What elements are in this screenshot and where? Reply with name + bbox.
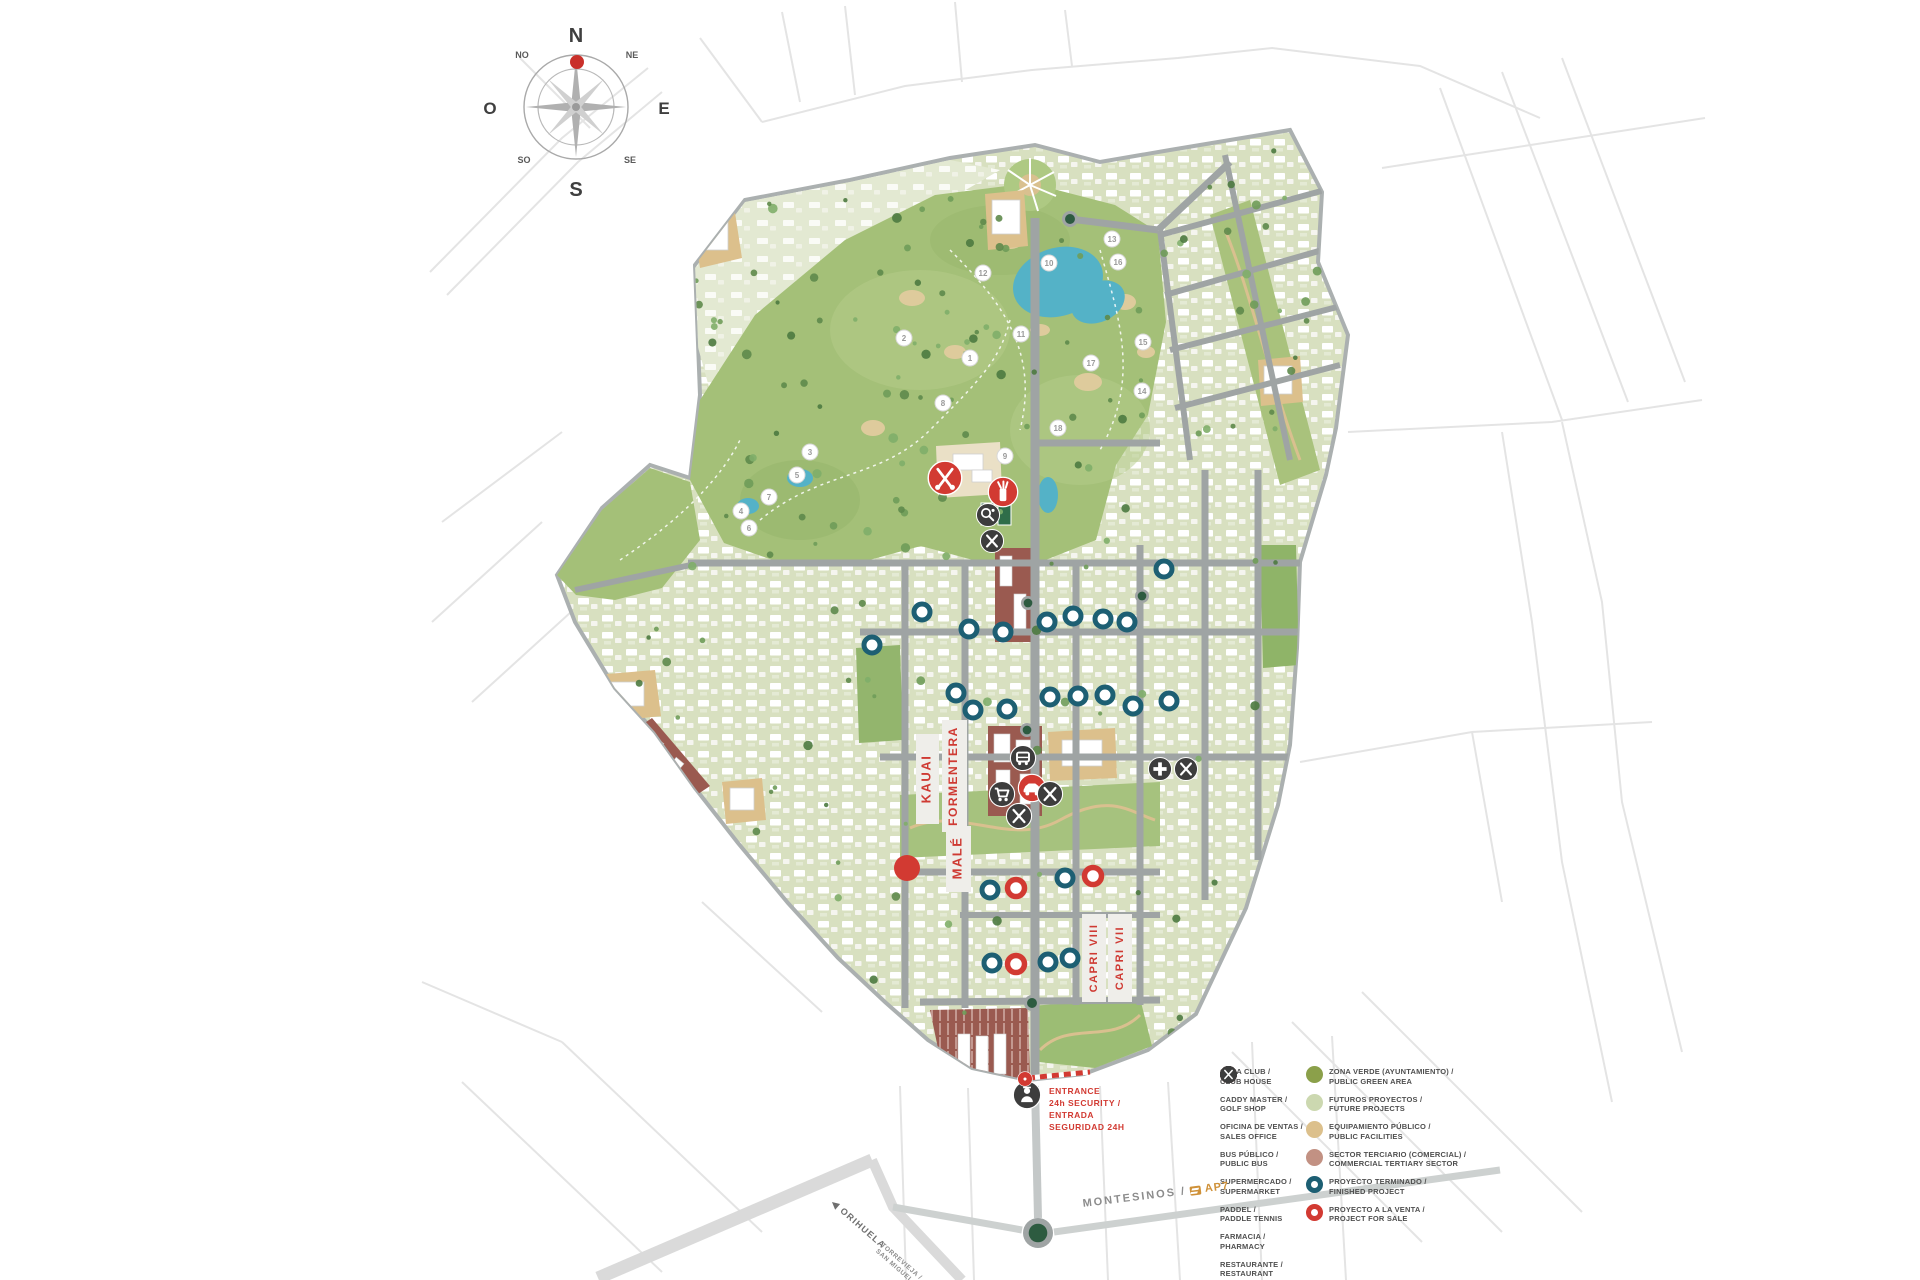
- compass-north-dot: [570, 55, 584, 69]
- golf-hole-marker[interactable]: 13: [1104, 231, 1120, 247]
- tree-icon: [853, 317, 857, 321]
- tree-icon: [1271, 148, 1276, 153]
- tree-icon: [901, 543, 910, 552]
- tree-icon: [1037, 872, 1042, 877]
- golf-hole-marker[interactable]: 10: [1041, 255, 1057, 271]
- tree-icon: [1177, 1015, 1183, 1021]
- tree-icon: [863, 527, 872, 536]
- svg-text:18: 18: [1054, 424, 1063, 433]
- tree-icon: [812, 949, 819, 956]
- tree-icon: [813, 542, 817, 546]
- tree-icon: [1105, 315, 1110, 320]
- tree-icon: [916, 676, 925, 685]
- finished-project-marker[interactable]: [1156, 561, 1172, 577]
- tree-icon: [843, 198, 847, 202]
- tree-icon: [646, 635, 651, 640]
- finished-project-marker[interactable]: [1125, 698, 1141, 714]
- svg-text:16: 16: [1114, 258, 1123, 267]
- tree-icon: [1301, 297, 1310, 306]
- tree-icon: [992, 331, 1001, 340]
- golf-course: [557, 183, 1166, 600]
- svg-text:6: 6: [747, 524, 752, 533]
- tree-icon: [1180, 235, 1188, 243]
- tree-icon: [888, 433, 898, 443]
- tree-icon: [1160, 249, 1167, 256]
- tree-icon: [1196, 430, 1202, 436]
- amenity-restaurant-icon[interactable]: [1037, 781, 1062, 806]
- tree-icon: [996, 215, 1003, 222]
- svg-text:4: 4: [739, 507, 744, 516]
- project-for-sale-marker[interactable]: [1085, 868, 1102, 885]
- tree-icon: [700, 638, 706, 644]
- tree-icon: [1321, 170, 1330, 179]
- tree-icon: [859, 600, 866, 607]
- tree-icon: [983, 697, 992, 706]
- golf-hole-marker[interactable]: 14: [1134, 383, 1150, 399]
- tree-icon: [1282, 196, 1287, 201]
- svg-text:10: 10: [1045, 259, 1054, 268]
- tree-icon: [1172, 915, 1180, 923]
- tree-icon: [688, 562, 696, 570]
- tree-icon: [900, 390, 909, 399]
- svg-text:17: 17: [1087, 359, 1096, 368]
- tree-icon: [1203, 425, 1211, 433]
- golf-hole-marker[interactable]: 17: [1083, 355, 1099, 371]
- tree-icon: [898, 506, 905, 513]
- finished-project-marker[interactable]: [965, 702, 981, 718]
- tree-icon: [799, 514, 806, 521]
- finished-project-marker[interactable]: [999, 701, 1015, 717]
- tree-icon: [1252, 200, 1261, 209]
- tree-icon: [846, 678, 851, 683]
- roundabout-center: [1029, 1224, 1048, 1243]
- finished-project-marker[interactable]: [1070, 688, 1086, 704]
- street-label: CAPRI VII: [1114, 926, 1126, 990]
- finished-project-marker[interactable]: [1057, 870, 1073, 886]
- golf-hole-marker[interactable]: 18: [1050, 420, 1066, 436]
- tree-icon: [1098, 711, 1102, 715]
- tree-icon: [913, 341, 917, 345]
- compass-ne: NE: [626, 50, 639, 60]
- finished-project-marker[interactable]: [948, 685, 964, 701]
- tree-icon: [1139, 412, 1145, 418]
- golf-hole-marker[interactable]: 5: [789, 467, 805, 483]
- tree-icon: [969, 334, 978, 343]
- tree-icon: [1207, 185, 1212, 190]
- golf-hole-marker[interactable]: 7: [761, 489, 777, 505]
- amenity-paddle-icon[interactable]: [976, 503, 999, 526]
- street-label: CAPRI VIII: [1088, 924, 1100, 993]
- tree-icon: [1104, 538, 1110, 544]
- compass-e: E: [658, 99, 669, 118]
- tree-icon: [1236, 307, 1244, 315]
- tree-icon: [767, 551, 774, 558]
- tree-icon: [1212, 879, 1218, 885]
- svg-text:15: 15: [1139, 338, 1148, 347]
- tree-icon: [836, 860, 841, 865]
- svg-text:2: 2: [902, 334, 907, 343]
- tree-icon: [921, 350, 930, 359]
- tree-icon: [744, 479, 753, 488]
- compass-rose: N S E O NO NE SO SE: [483, 25, 669, 201]
- golf-hole-marker[interactable]: 8: [935, 395, 951, 411]
- finished-project-marker[interactable]: [914, 604, 930, 620]
- golf-hole-marker[interactable]: 2: [896, 330, 912, 346]
- tree-icon: [1121, 504, 1129, 512]
- tree-icon: [964, 339, 970, 345]
- tree-icon: [992, 916, 1001, 925]
- golf-hole-marker[interactable]: 15: [1135, 334, 1151, 350]
- tree-icon: [865, 677, 871, 683]
- tree-icon: [625, 933, 635, 943]
- tree-icon: [915, 280, 921, 286]
- tree-icon: [787, 332, 795, 340]
- svg-text:13: 13: [1108, 235, 1117, 244]
- tree-icon: [751, 269, 758, 276]
- svg-text:12: 12: [979, 269, 988, 278]
- compass-no: NO: [515, 50, 529, 60]
- tree-icon: [708, 338, 716, 346]
- finished-project-marker[interactable]: [982, 882, 998, 898]
- roundabout-center: [1027, 998, 1037, 1008]
- compass-o: O: [483, 99, 496, 118]
- tree-icon: [1287, 367, 1295, 375]
- golf-hole-marker[interactable]: 9: [997, 448, 1013, 464]
- tree-icon: [831, 606, 839, 614]
- tree-icon: [662, 658, 671, 667]
- tree-icon: [711, 317, 717, 323]
- tree-icon: [763, 1013, 768, 1018]
- tree-icon: [1065, 340, 1070, 345]
- tree-icon: [945, 920, 952, 927]
- tree-icon: [892, 213, 902, 223]
- tree-icon: [801, 1037, 805, 1041]
- tree-icon: [671, 795, 678, 802]
- tree-icon: [899, 460, 905, 466]
- tree-icon: [918, 395, 923, 400]
- tree-icon: [942, 552, 950, 560]
- svg-text:3: 3: [808, 448, 813, 457]
- tree-icon: [869, 976, 877, 984]
- tree-icon: [724, 514, 728, 518]
- amenity-restaurant-icon[interactable]: [1174, 757, 1197, 780]
- golf-hole-marker[interactable]: 1: [962, 350, 978, 366]
- tree-icon: [817, 318, 823, 324]
- finished-project-marker[interactable]: [995, 624, 1011, 640]
- site-plan-map: KAUAIFORMENTERAMALÉCAPRI VIIICAPRI VII 1…: [0, 0, 1920, 1280]
- amenity-restaurant-icon[interactable]: [980, 529, 1003, 552]
- tree-icon: [1231, 424, 1236, 429]
- tree-icon: [810, 273, 818, 281]
- tree-icon: [904, 244, 911, 251]
- tree-icon: [812, 469, 821, 478]
- svg-text:11: 11: [1017, 330, 1026, 339]
- svg-text:14: 14: [1138, 387, 1147, 396]
- golf-hole-marker[interactable]: 6: [741, 520, 757, 536]
- compass-n: N: [569, 25, 583, 47]
- tree-icon: [717, 319, 722, 324]
- street-label: MALÉ: [949, 837, 964, 880]
- tree-icon: [817, 404, 822, 409]
- map-canvas: KAUAIFORMENTERAMALÉCAPRI VIIICAPRI VII 1…: [0, 0, 1920, 1280]
- compass-se: SE: [624, 155, 636, 165]
- tree-icon: [1262, 939, 1272, 949]
- tree-icon: [599, 1026, 607, 1034]
- tree-icon: [781, 382, 787, 388]
- tree-icon: [1136, 307, 1143, 314]
- tree-icon: [1069, 414, 1076, 421]
- tree-icon: [945, 310, 950, 315]
- tree-icon: [1253, 558, 1259, 564]
- amenity-gate-icon[interactable]: [1018, 1072, 1033, 1087]
- tree-icon: [1139, 378, 1143, 382]
- finished-project-marker[interactable]: [864, 637, 880, 653]
- svg-text:1: 1: [968, 354, 973, 363]
- project-for-sale-marker[interactable]: [1008, 880, 1025, 897]
- tree-icon: [1059, 238, 1064, 243]
- svg-text:8: 8: [941, 399, 946, 408]
- tree-icon: [803, 741, 812, 750]
- amenity-bus-icon[interactable]: [1010, 745, 1035, 770]
- svg-text:9: 9: [1003, 452, 1008, 461]
- tree-icon: [616, 826, 624, 834]
- tree-icon: [769, 790, 773, 794]
- amenity-golf-bag-icon[interactable]: [988, 477, 1017, 506]
- tree-icon: [979, 225, 984, 230]
- compass-so: SO: [517, 155, 530, 165]
- tree-icon: [1265, 986, 1270, 991]
- tree-icon: [1293, 355, 1298, 360]
- tree-icon: [742, 349, 752, 359]
- tree-icon: [775, 300, 779, 304]
- tree-icon: [966, 239, 974, 247]
- tree-icon: [962, 1010, 967, 1015]
- finished-project-marker[interactable]: [1097, 687, 1113, 703]
- highlight-red-dot-marker[interactable]: [894, 855, 920, 881]
- tree-icon: [1075, 461, 1082, 468]
- finished-project-marker[interactable]: [984, 955, 1000, 971]
- finished-project-marker[interactable]: [961, 621, 977, 637]
- tree-icon: [904, 822, 908, 826]
- tree-icon: [1032, 369, 1037, 374]
- tree-icon: [975, 330, 980, 335]
- finished-project-marker[interactable]: [1039, 614, 1055, 630]
- tree-icon: [877, 269, 883, 275]
- tree-icon: [714, 938, 721, 945]
- tree-icon: [996, 370, 1005, 379]
- tree-icon: [749, 454, 757, 462]
- tree-icon: [920, 446, 929, 455]
- tree-icon: [948, 196, 954, 202]
- tree-icon: [678, 961, 687, 970]
- tree-icon: [1024, 424, 1030, 430]
- tree-icon: [1138, 690, 1146, 698]
- tree-icon: [767, 202, 771, 206]
- tree-icon: [773, 785, 778, 790]
- tree-icon: [1049, 562, 1053, 566]
- tree-icon: [1250, 300, 1259, 309]
- roundabout-center: [1138, 592, 1147, 601]
- tree-icon: [1269, 410, 1274, 415]
- tree-icon: [1228, 181, 1235, 188]
- tree-icon: [1085, 464, 1092, 471]
- tree-icon: [1084, 565, 1089, 570]
- tree-icon: [1224, 227, 1232, 235]
- roundabout-center: [1024, 599, 1033, 608]
- tree-icon: [753, 828, 761, 836]
- tree-icon: [667, 773, 676, 782]
- tree-icon: [1077, 253, 1083, 259]
- amenity-golf-clubs-icon[interactable]: [928, 461, 962, 495]
- tree-icon: [996, 243, 1004, 251]
- tree-icon: [1262, 223, 1269, 230]
- finished-project-marker[interactable]: [1119, 614, 1135, 630]
- tree-icon: [654, 627, 659, 632]
- tree-icon: [936, 344, 941, 349]
- roundabout-center: [1065, 214, 1075, 224]
- amenity-restaurant-icon[interactable]: [1006, 803, 1031, 828]
- finished-project-marker[interactable]: [1095, 611, 1111, 627]
- finished-project-marker[interactable]: [1062, 950, 1078, 966]
- tree-icon: [711, 323, 718, 330]
- tree-icon: [893, 497, 900, 504]
- golf-hole-marker[interactable]: 16: [1110, 254, 1126, 270]
- tree-icon: [1242, 270, 1251, 279]
- tree-icon: [830, 522, 838, 530]
- amenity-cross-icon[interactable]: [1148, 757, 1171, 780]
- finished-project-marker[interactable]: [1065, 608, 1081, 624]
- tree-icon: [892, 892, 901, 901]
- tree-icon: [1136, 890, 1141, 895]
- tree-icon: [636, 680, 643, 687]
- compass-s: S: [569, 179, 582, 201]
- tree-icon: [1271, 1029, 1277, 1035]
- golf-hole-marker[interactable]: 3: [802, 444, 818, 460]
- tree-icon: [675, 715, 680, 720]
- tree-icon: [883, 390, 891, 398]
- tree-icon: [962, 431, 969, 438]
- tree-icon: [1304, 318, 1310, 324]
- tree-icon: [1250, 701, 1259, 710]
- tree-icon: [1118, 415, 1127, 424]
- golf-hole-marker[interactable]: 11: [1013, 326, 1029, 342]
- tree-icon: [1273, 560, 1278, 565]
- roundabout-center: [1023, 726, 1032, 735]
- tree-icon: [983, 324, 989, 330]
- street-label: FORMENTERA: [946, 726, 960, 826]
- tree-icon: [687, 367, 694, 374]
- finished-project-marker[interactable]: [1040, 954, 1056, 970]
- tree-icon: [835, 894, 842, 901]
- tree-icon: [824, 803, 828, 807]
- tree-icon: [1108, 398, 1113, 403]
- tree-icon: [980, 219, 986, 225]
- finished-project-marker[interactable]: [1161, 693, 1177, 709]
- project-for-sale-marker[interactable]: [1008, 956, 1025, 973]
- tree-icon: [1277, 309, 1282, 314]
- tree-icon: [800, 379, 807, 386]
- amenity-cart-icon[interactable]: [989, 781, 1014, 806]
- tree-icon: [1273, 426, 1278, 431]
- tree-icon: [774, 431, 779, 436]
- tree-icon: [1313, 267, 1322, 276]
- tree-icon: [939, 290, 945, 296]
- offsite-roads: [598, 1086, 1500, 1280]
- svg-text:5: 5: [795, 471, 800, 480]
- tree-icon: [1195, 756, 1201, 762]
- tree-icon: [896, 375, 900, 379]
- finished-project-marker[interactable]: [1042, 689, 1058, 705]
- street-label: KAUAI: [918, 755, 933, 804]
- svg-text:7: 7: [767, 493, 772, 502]
- tree-icon: [919, 206, 925, 212]
- tree-icon: [872, 694, 876, 698]
- golf-hole-marker[interactable]: 4: [733, 503, 749, 519]
- golf-hole-marker[interactable]: 12: [975, 265, 991, 281]
